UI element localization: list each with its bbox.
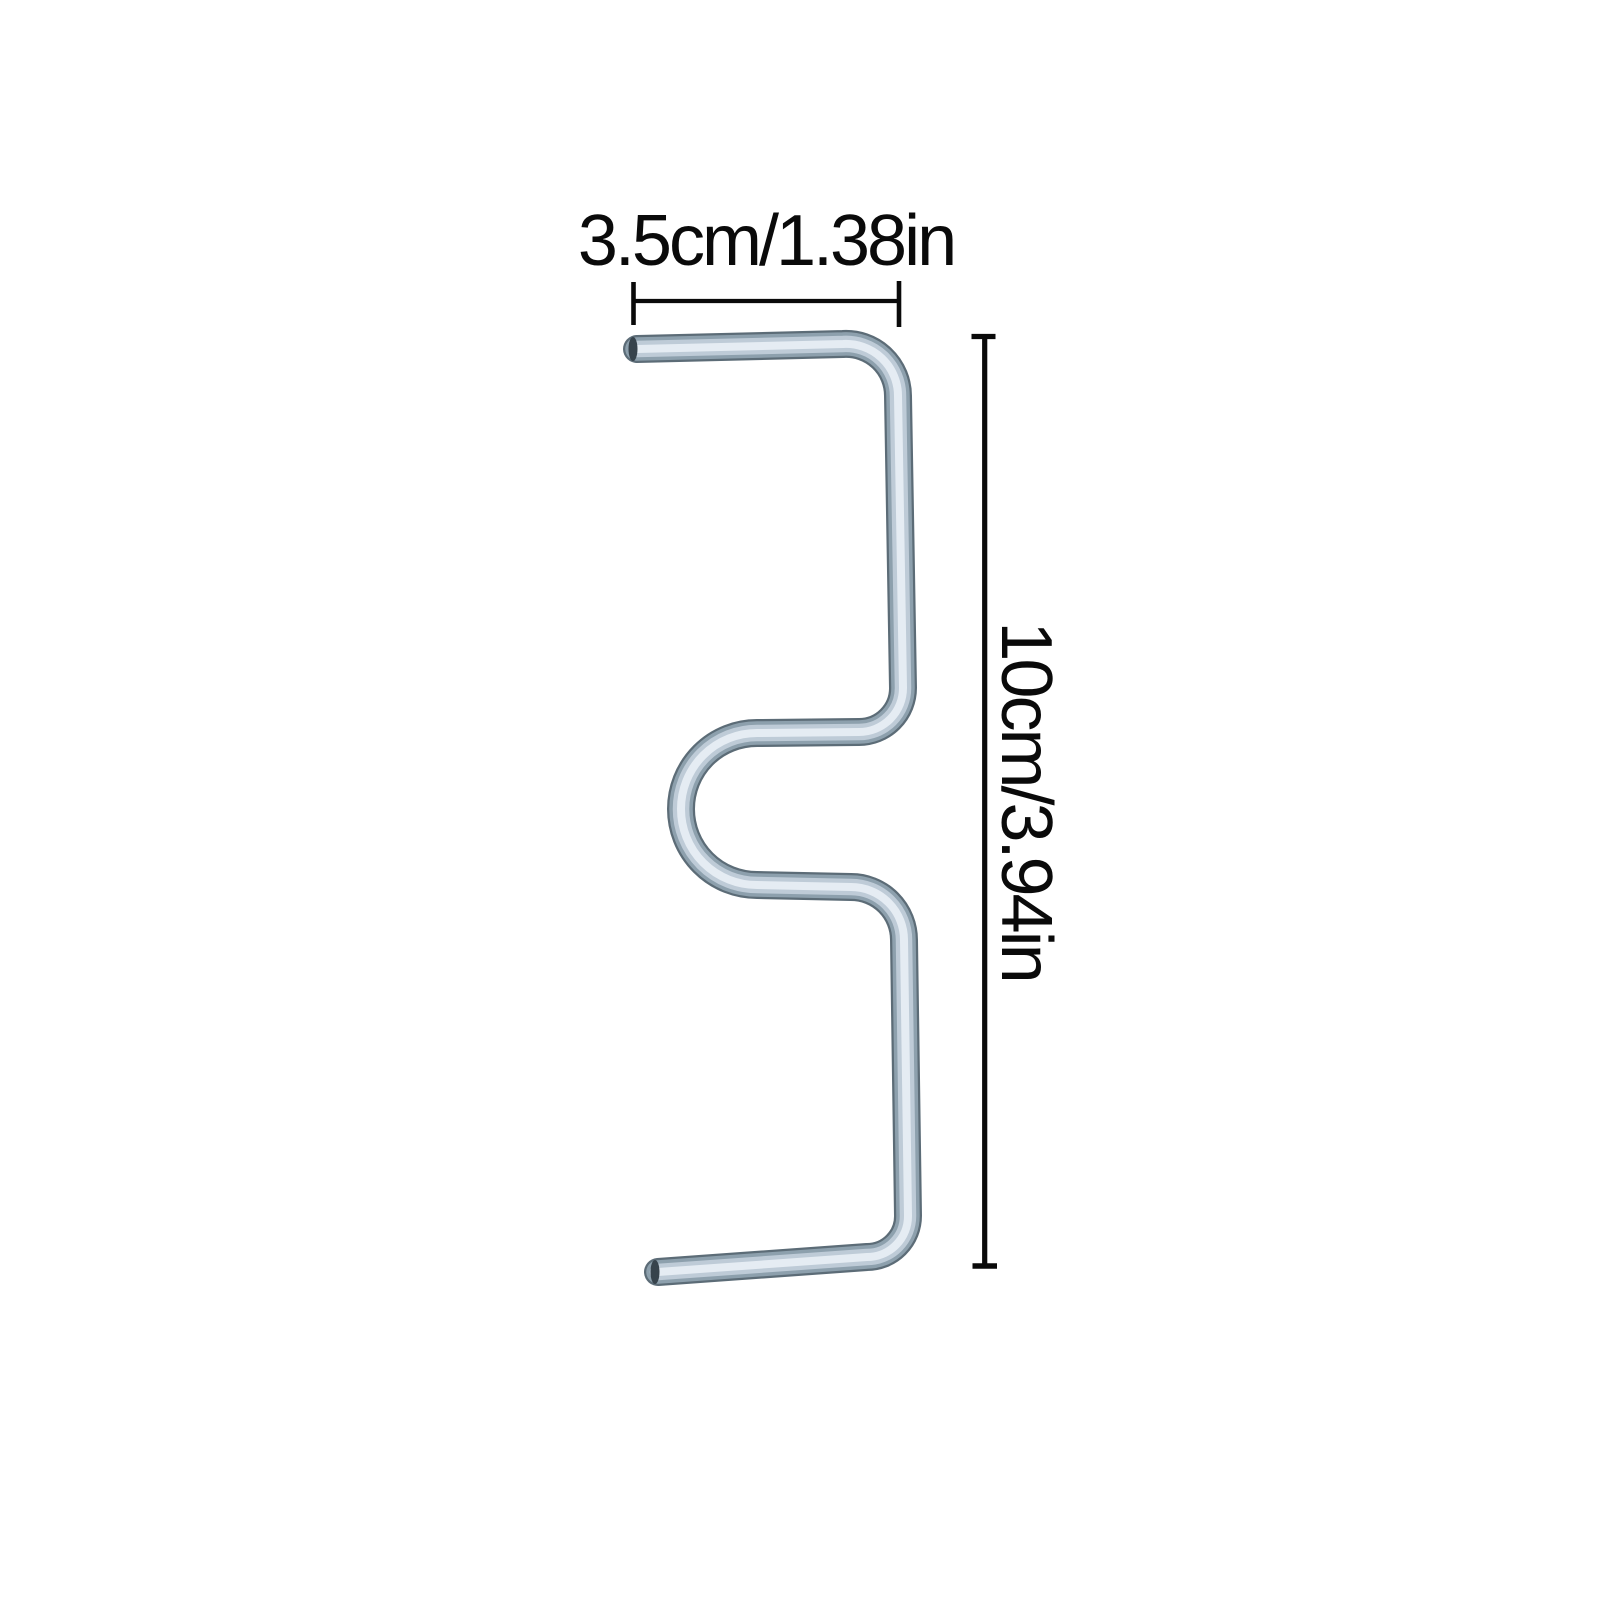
svg-text:3.5cm/1.38in: 3.5cm/1.38in [578, 201, 954, 281]
svg-text:10cm/3.94in: 10cm/3.94in [986, 621, 1066, 980]
